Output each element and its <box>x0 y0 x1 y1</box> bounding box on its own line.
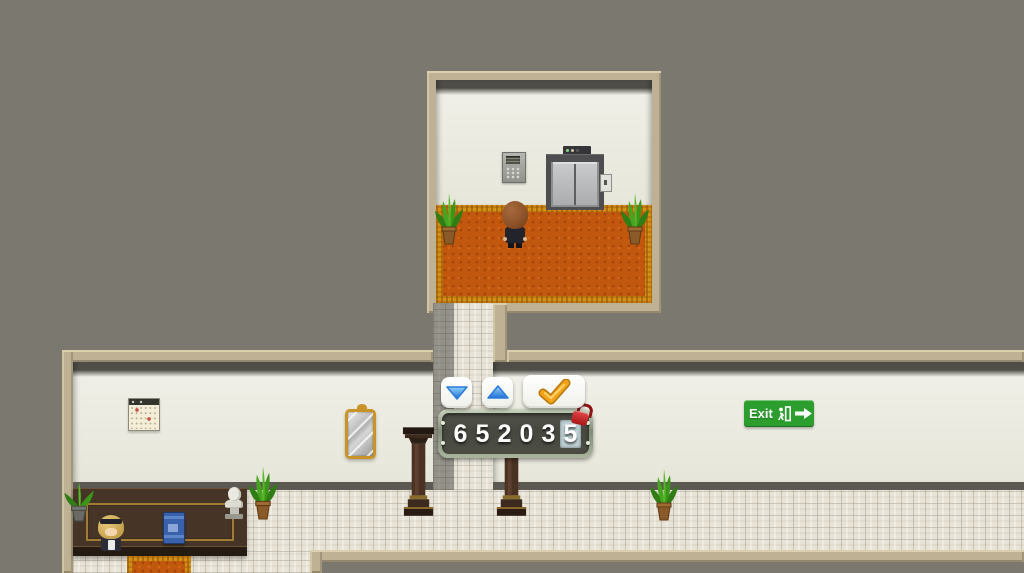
bust-base <box>225 514 243 519</box>
calendar-grid <box>130 406 158 429</box>
code-digits: 6 5 2 0 3 5 <box>442 413 589 454</box>
receptionist-headband <box>100 519 122 524</box>
increase-button[interactable] <box>482 377 513 408</box>
indicator-light <box>566 149 569 152</box>
desk-plant <box>62 480 96 527</box>
receptionist-apron <box>108 540 115 550</box>
wall-floor-shadow-right <box>493 482 1024 490</box>
ornate-mirror <box>345 409 376 459</box>
elevator <box>546 154 604 210</box>
receptionist-face <box>105 528 117 536</box>
room-carpet <box>443 212 645 296</box>
blue-book <box>163 512 185 544</box>
digit-slot: 2 <box>494 420 515 448</box>
panel-rivet <box>441 421 445 425</box>
potted-plant-room-left <box>433 181 465 250</box>
hallway-bottom-border <box>310 550 1024 562</box>
code-display-panel: 6 5 2 0 3 5 <box>438 409 593 458</box>
game-scene: Exit <box>0 0 1024 573</box>
reception-carpet <box>133 561 185 573</box>
mirror-glass <box>348 412 373 456</box>
player-hand <box>503 237 507 241</box>
receptionist <box>97 515 125 553</box>
down-triangle-icon <box>445 384 469 401</box>
hallway-top-border-right <box>507 350 1024 362</box>
player-body <box>505 227 525 243</box>
indicator-light <box>571 149 574 152</box>
running-man-icon <box>776 406 791 422</box>
panel-rivet <box>586 441 590 445</box>
up-triangle-icon <box>486 384 510 401</box>
player-character <box>502 201 528 248</box>
digit-slot: 3 <box>538 420 559 448</box>
hallway-left-border <box>62 350 73 573</box>
player-hair <box>502 201 528 229</box>
corridor-right-frame <box>493 303 507 362</box>
player-leg <box>516 243 522 248</box>
potted-plant-room-right <box>619 181 651 250</box>
player-hand <box>523 237 527 241</box>
right-arrow-icon <box>794 407 813 420</box>
indicator-light <box>576 149 579 152</box>
keypad-screen <box>506 156 520 164</box>
digit-slot: 6 <box>450 420 471 448</box>
hallway-plant <box>648 456 680 527</box>
exit-sign-label: Exit <box>749 406 773 421</box>
decrease-button[interactable] <box>441 377 472 408</box>
wall-keypad <box>502 152 526 183</box>
wall-calendar <box>128 398 160 431</box>
digit-slot: 5 <box>472 420 493 448</box>
exit-sign: Exit <box>744 400 814 427</box>
reception-tall-plant <box>246 454 280 525</box>
player-leg <box>508 243 514 248</box>
digit-slot: 0 <box>516 420 537 448</box>
keypad-buttons <box>506 167 521 179</box>
checkmark-icon <box>537 379 571 405</box>
reception-carpet-border <box>127 556 191 573</box>
calendar-header <box>129 399 159 405</box>
hallway-top-border-left <box>62 350 433 362</box>
bust-statue <box>220 484 248 520</box>
confirm-button[interactable] <box>523 375 585 408</box>
elevator-doors <box>551 162 599 207</box>
panel-rivet <box>441 441 445 445</box>
wooden-pillar-left <box>401 427 436 526</box>
reception-right-border <box>310 550 322 573</box>
elevator-call-button <box>600 174 612 192</box>
